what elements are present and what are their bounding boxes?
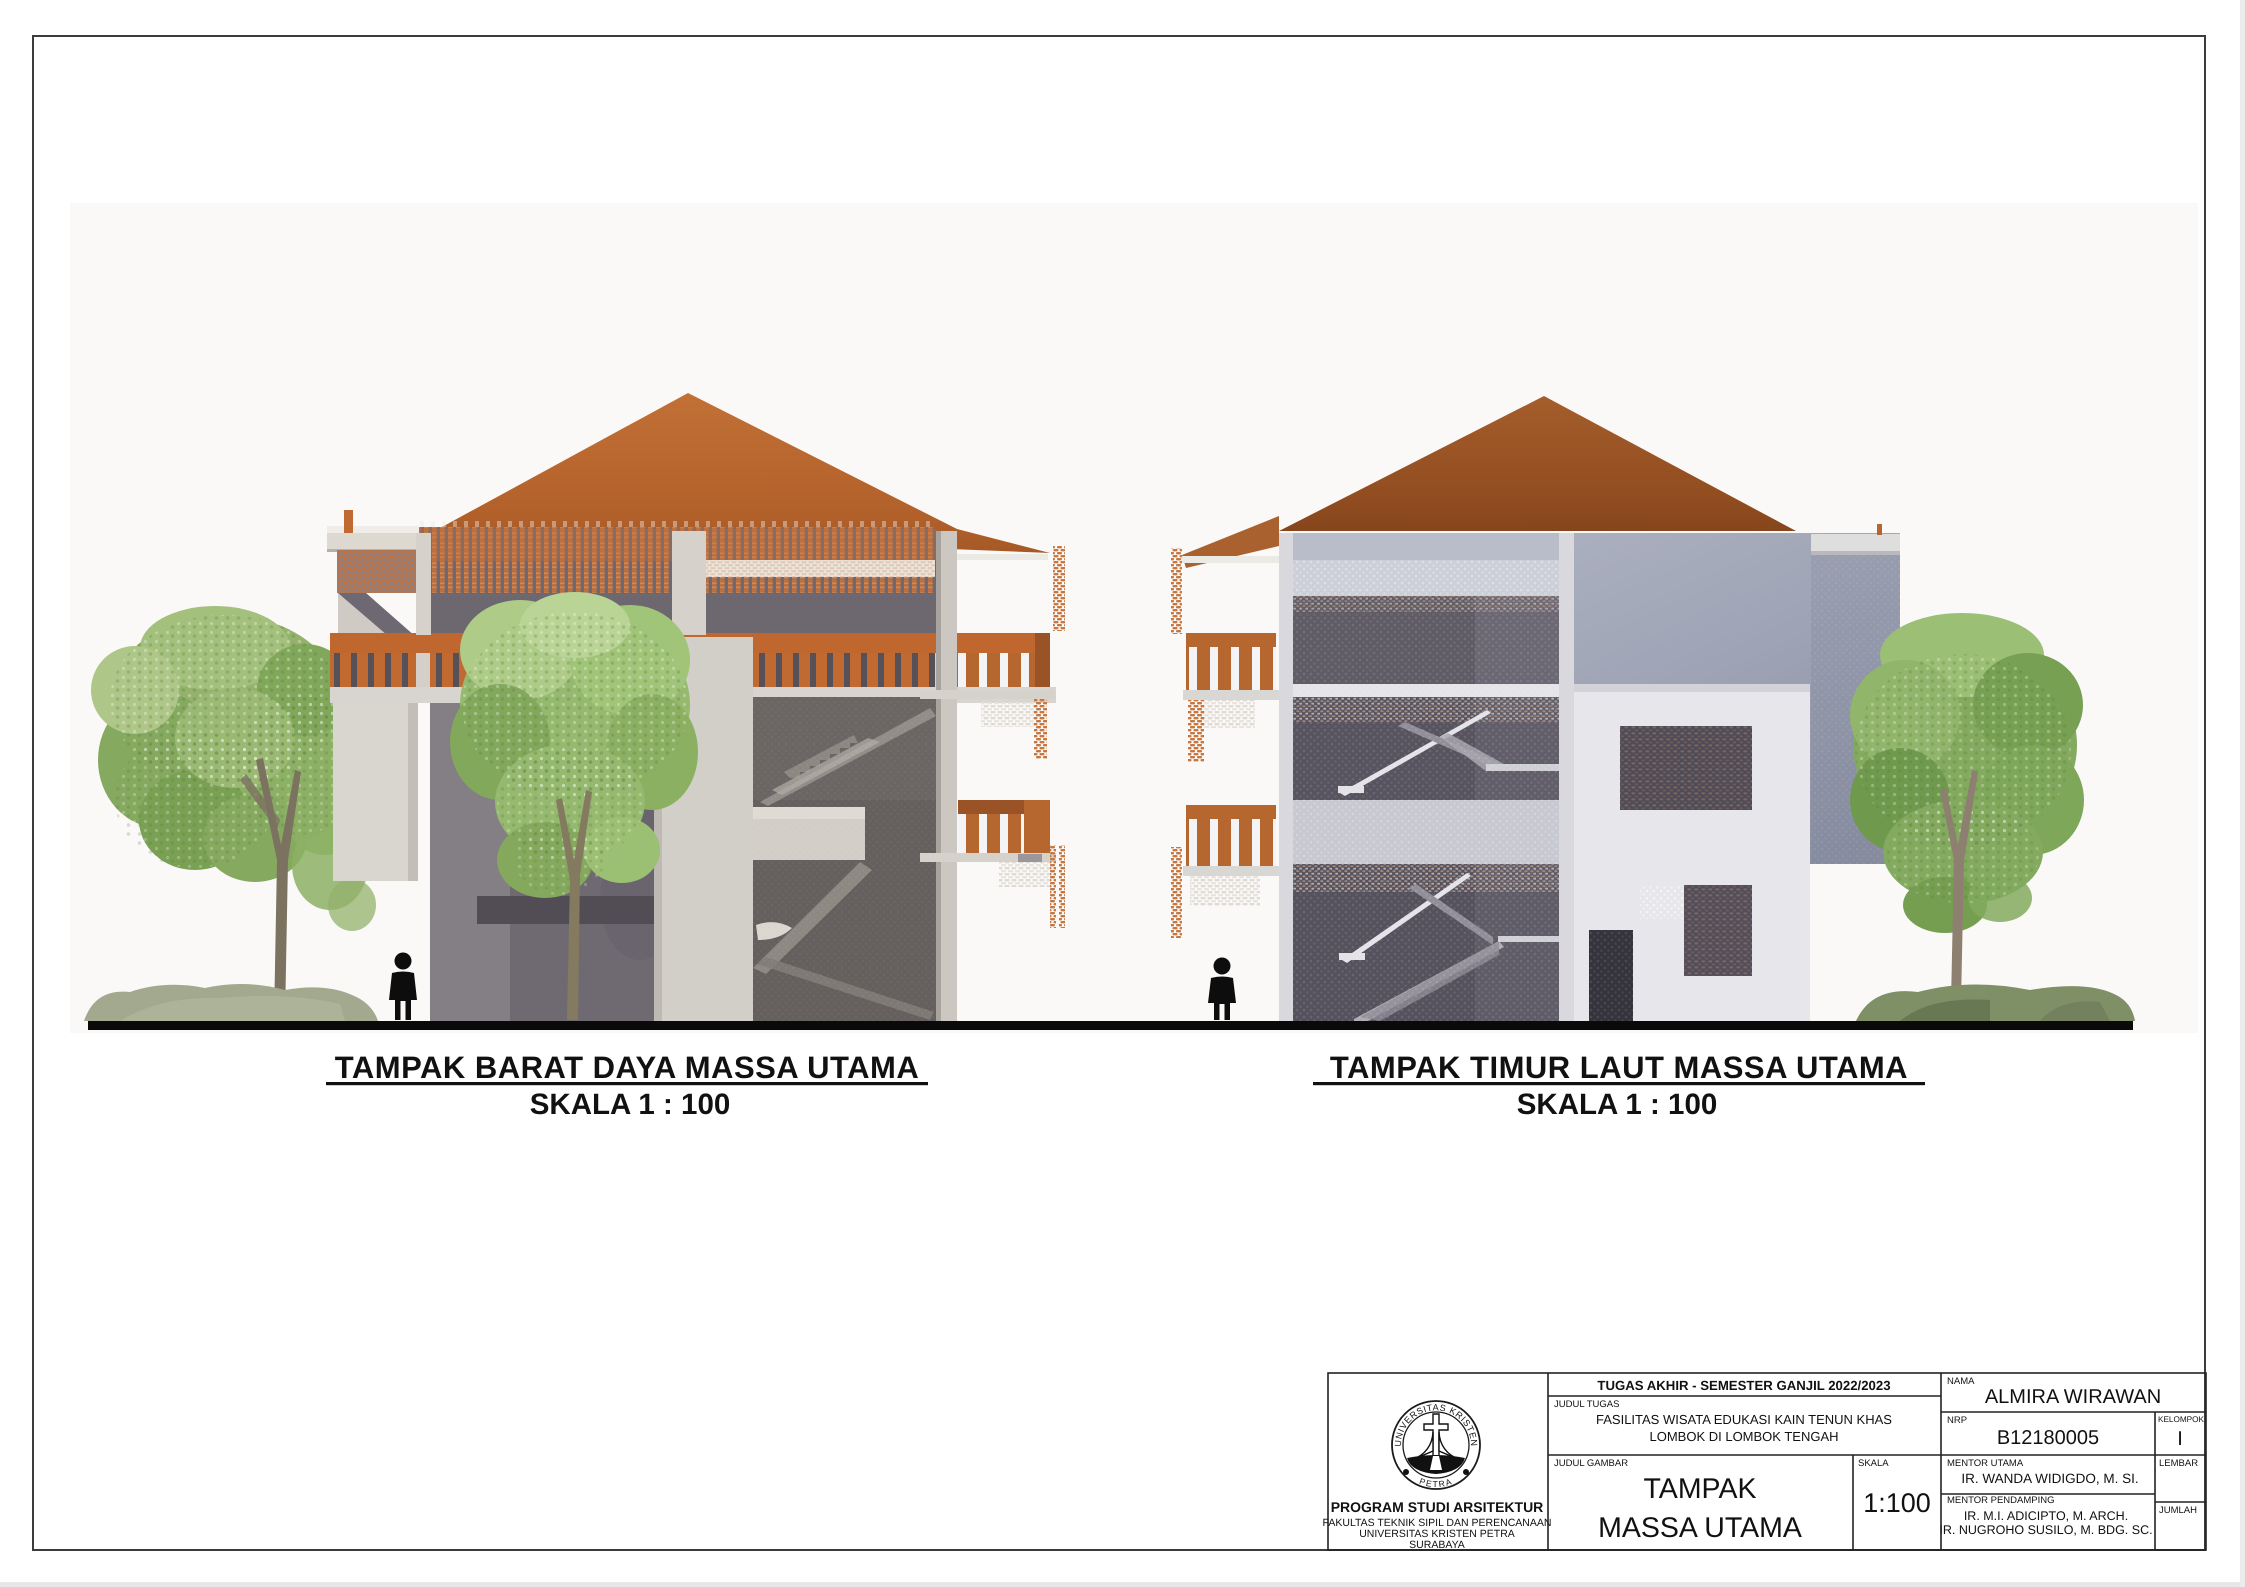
- svg-text:NRP: NRP: [1947, 1415, 1967, 1426]
- svg-text:TAMPAK BARAT DAYA MASSA UTAMA: TAMPAK BARAT DAYA MASSA UTAMA: [335, 1050, 920, 1085]
- svg-text:PROGRAM STUDI ARSITEKTUR: PROGRAM STUDI ARSITEKTUR: [1331, 1499, 1544, 1515]
- svg-text:SKALA 1 : 100: SKALA 1 : 100: [1517, 1088, 1718, 1121]
- svg-text:MENTOR PENDAMPING: MENTOR PENDAMPING: [1947, 1495, 2055, 1506]
- svg-text:TAMPAK: TAMPAK: [1644, 1473, 1757, 1505]
- svg-text:I: I: [2177, 1428, 2183, 1450]
- svg-text:MASSA UTAMA: MASSA UTAMA: [1598, 1512, 1802, 1544]
- svg-text:IR. M.I. ADICIPTO, M. ARCH.: IR. M.I. ADICIPTO, M. ARCH.: [1964, 1509, 2128, 1523]
- svg-text:JUMLAH: JUMLAH: [2159, 1505, 2197, 1516]
- svg-text:TAMPAK TIMUR LAUT MASSA UTAMA: TAMPAK TIMUR LAUT MASSA UTAMA: [1330, 1050, 1908, 1085]
- svg-text:JUDUL TUGAS: JUDUL TUGAS: [1554, 1399, 1619, 1410]
- svg-text:TUGAS AKHIR - SEMESTER GANJIL: TUGAS AKHIR - SEMESTER GANJIL 2022/2023: [1597, 1378, 1890, 1393]
- svg-text:1:100: 1:100: [1863, 1488, 1931, 1518]
- svg-text:LOMBOK DI LOMBOK TENGAH: LOMBOK DI LOMBOK TENGAH: [1649, 1429, 1838, 1444]
- svg-text:SURABAYA: SURABAYA: [1409, 1539, 1465, 1551]
- svg-text:LEMBAR: LEMBAR: [2159, 1458, 2198, 1469]
- svg-text:B12180005: B12180005: [1997, 1427, 2099, 1449]
- svg-text:IR. WANDA WIDIGDO, M. SI.: IR. WANDA WIDIGDO, M. SI.: [1961, 1471, 2138, 1486]
- svg-text:FASILITAS WISATA EDUKASI KAIN: FASILITAS WISATA EDUKASI KAIN TENUN KHAS: [1596, 1412, 1892, 1427]
- svg-text:SKALA 1 : 100: SKALA 1 : 100: [530, 1088, 731, 1121]
- svg-text:NAMA: NAMA: [1947, 1376, 1975, 1387]
- svg-text:ALMIRA WIRAWAN: ALMIRA WIRAWAN: [1985, 1386, 2161, 1408]
- svg-text:SKALA: SKALA: [1858, 1458, 1889, 1469]
- svg-text:JUDUL GAMBAR: JUDUL GAMBAR: [1554, 1458, 1628, 1469]
- svg-text:MENTOR UTAMA: MENTOR UTAMA: [1947, 1458, 2024, 1469]
- svg-text:IR. NUGROHO SUSILO, M. BDG. SC: IR. NUGROHO SUSILO, M. BDG. SC.: [1939, 1523, 2152, 1537]
- svg-text:KELOMPOK: KELOMPOK: [2158, 1415, 2204, 1424]
